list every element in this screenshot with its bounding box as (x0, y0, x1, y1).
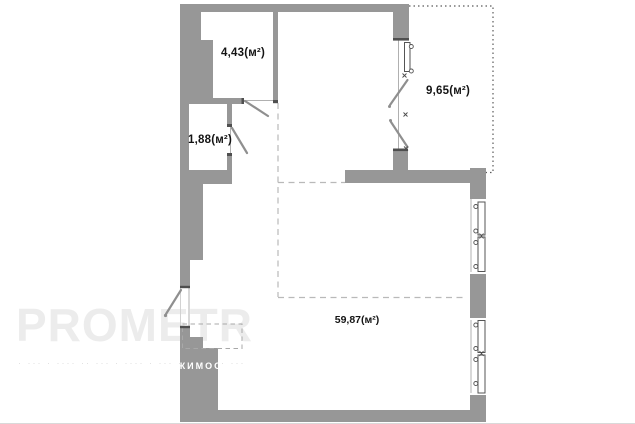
wall-left-lower (180, 184, 203, 260)
wall-wc-right-upper (227, 104, 232, 127)
room-area-label-1: 4,43(м²) (221, 47, 265, 59)
wall-top-right-block (393, 4, 409, 38)
watermark-tagline-faint-left: · ··· · ···· ·· ··· · ···· · ··· ·· (18, 358, 188, 368)
wall-left-step (180, 40, 213, 98)
wall-bottom (180, 410, 485, 422)
wall-left-entry-jamb (180, 260, 190, 288)
wall-left-step-b (180, 337, 203, 348)
wall-top (180, 4, 409, 12)
room-area-label-main: 59,87(м²) (335, 314, 380, 326)
wall-mid-horizontal (345, 170, 470, 183)
floor-plan: PROMETR · ··· · ···· ·· ··· · ···· · ···… (0, 0, 635, 424)
wall-wc-right-lower (227, 155, 232, 170)
wall-right-pier (470, 274, 486, 318)
wall-left-step-a (180, 326, 190, 337)
wall-right-corner-top (470, 168, 486, 199)
watermark-brand: PROMETR (16, 299, 253, 351)
zone-dashed-lines (278, 103, 467, 298)
watermark-tagline-fragment: ЖИМОС (177, 361, 223, 371)
image-bottom-edge-line (0, 423, 635, 424)
watermark-tagline-faint-right: · ··· (221, 358, 246, 368)
wall-band-room1-bottom (180, 98, 244, 104)
wall-left-bottom-block (180, 348, 218, 410)
room-area-label-3: 9,65(м²) (426, 85, 470, 97)
room-area-label-2: 1,88(м²) (188, 134, 232, 146)
wall-left-upper (180, 4, 201, 40)
wall-band-wc-bottom (180, 170, 232, 184)
wall-room1-divider (273, 12, 278, 103)
wall-mid-pier (393, 150, 408, 170)
wall-right-corner-bottom (470, 395, 486, 422)
